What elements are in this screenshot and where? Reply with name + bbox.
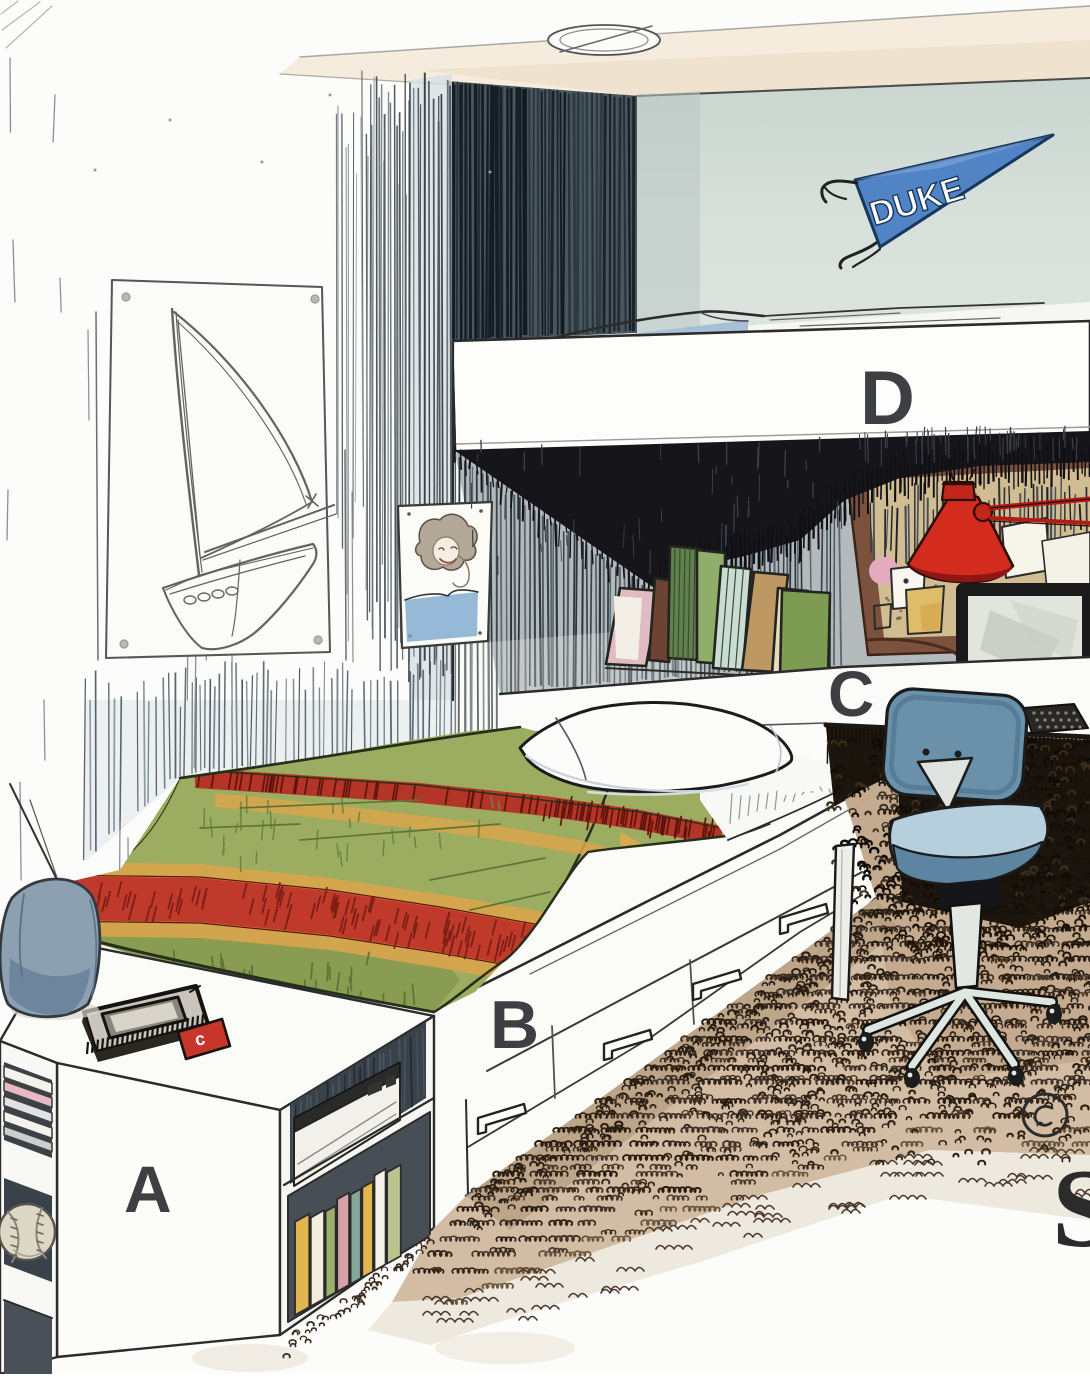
svg-text:A: A bbox=[124, 1152, 172, 1226]
svg-text:D: D bbox=[860, 356, 915, 441]
svg-text:S: S bbox=[1052, 1147, 1090, 1271]
svg-text:C: C bbox=[828, 658, 874, 730]
svg-text:B: B bbox=[490, 987, 539, 1063]
